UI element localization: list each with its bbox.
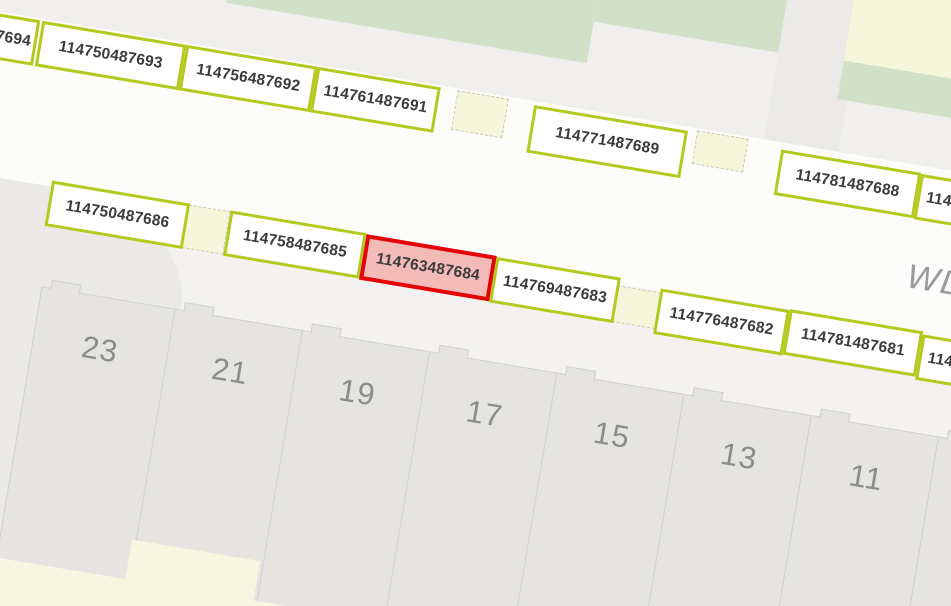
spot-label: 114781487681 (800, 325, 907, 360)
spot-label: 87694 (0, 26, 32, 51)
building-number: 19 (336, 372, 378, 413)
spot-label: 114776487682 (668, 304, 775, 339)
building-roof-notch (947, 430, 951, 445)
building-number: 21 (209, 351, 251, 392)
building-number: 11 (847, 457, 886, 497)
spot-label: 114781487688 (794, 166, 901, 201)
spot-label: 114758487685 (242, 227, 349, 262)
building-number: 13 (718, 436, 760, 477)
spot-label: 114750487693 (57, 38, 164, 73)
map-viewport[interactable]: 23 21 19 17 15 13 11 (0, 0, 951, 606)
map-canvas: 23 21 19 17 15 13 11 (0, 0, 951, 606)
building-number: 17 (464, 393, 506, 434)
building-number: 15 (591, 415, 633, 456)
spot-label: 114761487691 (322, 82, 429, 117)
spot-label: 1147 (925, 189, 951, 212)
spot-label: 114750487686 (64, 197, 171, 232)
spot-label: 114771487689 (554, 124, 661, 159)
building-number: 23 (79, 329, 121, 370)
vacant-plot (451, 90, 509, 138)
spot-label: 114763487684 (375, 250, 482, 285)
spot-label: 114756487692 (195, 61, 302, 96)
spot-label: 114769487683 (502, 273, 609, 308)
spot-label: 114 (926, 350, 951, 372)
